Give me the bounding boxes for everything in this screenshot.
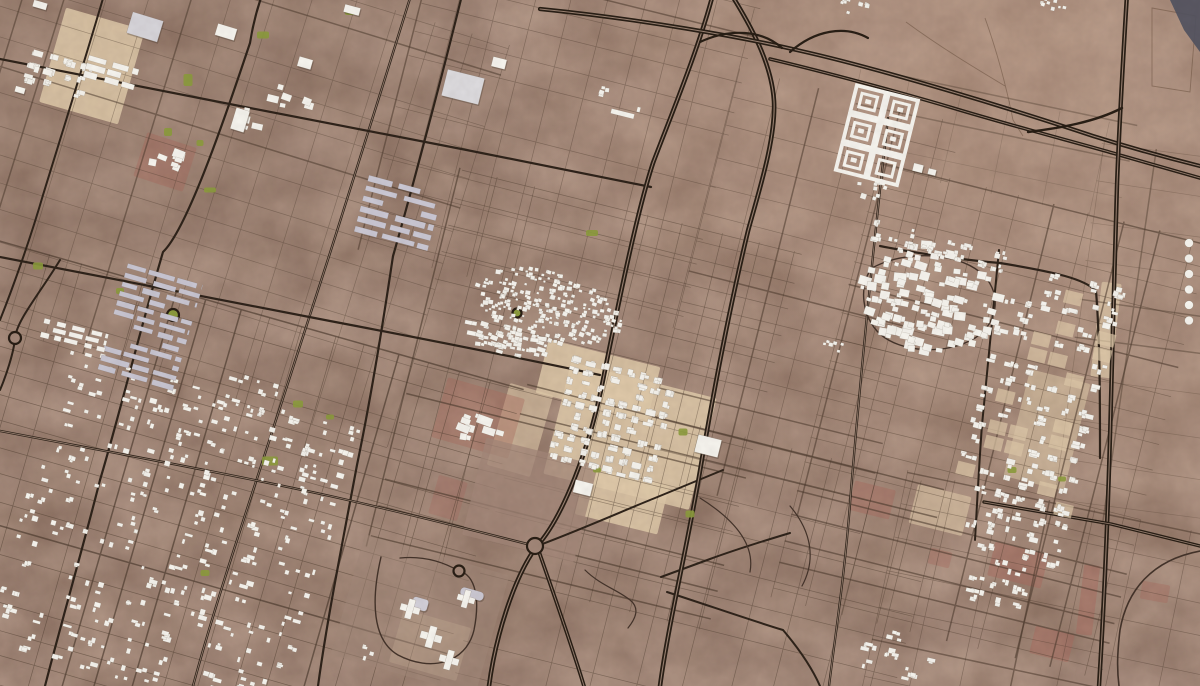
grain-overlay <box>0 0 1200 686</box>
city-aerial-map[interactable] <box>0 0 1200 686</box>
map-viewport[interactable] <box>0 0 1200 686</box>
top-layer <box>0 0 1200 686</box>
